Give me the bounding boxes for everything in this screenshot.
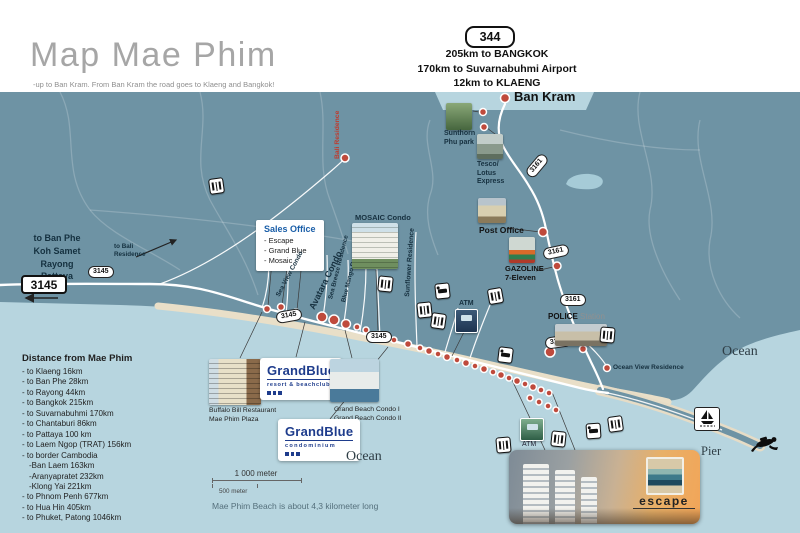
tesco-lotus-label: Tesco/ Lotus Express xyxy=(477,161,504,187)
restaurant-icon xyxy=(599,326,615,343)
hotel-icon xyxy=(497,346,514,364)
gazoline-label: GAZOLINE 7-Eleven xyxy=(505,264,544,282)
tesco-lotus-photo xyxy=(477,134,503,159)
atm-label: ATM xyxy=(522,441,536,448)
sailboat-icon xyxy=(694,407,720,431)
distance-panel-title: Distance from Mae Phim xyxy=(22,353,132,364)
restaurant-icon xyxy=(377,275,394,292)
route-badge-344: 344 xyxy=(465,26,515,48)
dest-rayong: Rayong xyxy=(24,258,90,271)
sales-office-box: Sales Office - Escape - Grand Blue - Mos… xyxy=(256,220,324,271)
sunthorn-phu-park-photo xyxy=(446,103,472,130)
restaurant-icon xyxy=(495,436,511,453)
distance-item: - to Suvarnabuhmi 170km xyxy=(22,409,132,419)
distance-item: -Aranyapratet 232km xyxy=(22,472,132,482)
buffalo-bill-label: Buffalo Bill Restaurant Mae Phim Plaza xyxy=(209,407,276,424)
distance-item: - to Pattaya 100 km xyxy=(22,430,132,440)
atm-icon xyxy=(455,309,478,333)
sales-office-item-grand-blue: - Grand Blue xyxy=(264,246,316,256)
sales-office-title: Sales Office xyxy=(264,224,316,234)
mosaic-condo-photo xyxy=(352,223,398,269)
dest-koh-samet: Koh Samet xyxy=(24,245,90,258)
scale-long-label: 1 000 meter xyxy=(212,469,300,478)
police-station-label: POLICE Station xyxy=(548,312,605,321)
restaurant-icon xyxy=(208,177,225,195)
escape-logo-text: escape xyxy=(633,495,695,509)
distance-item: - to Ban Phe 28km xyxy=(22,377,132,387)
restaurant-icon xyxy=(487,287,505,305)
route-oval-3145: 3145 xyxy=(366,331,392,343)
page-title: Map Mae Phim xyxy=(30,36,277,75)
ocean-label: Ocean xyxy=(722,344,758,360)
gazoline-photo xyxy=(509,237,535,263)
to-bali-residence-label: to Bali Residence xyxy=(114,243,154,259)
hotel-icon xyxy=(434,282,451,299)
post-office-photo xyxy=(478,198,506,223)
restaurant-icon xyxy=(550,430,567,447)
sales-office-item-escape: - Escape xyxy=(264,236,316,246)
distance-item: - to Klaeng 16km xyxy=(22,367,132,377)
escape-logo-icon xyxy=(646,457,684,495)
atm-icon xyxy=(520,418,544,441)
header-distance-airport: 170km to Suvarnabuhmi Airport xyxy=(397,62,597,77)
header-distance-bangkok: 205km to BANGKOK xyxy=(397,47,597,62)
sunthorn-phu-park-label: Sunthorn Phu park xyxy=(444,130,475,147)
beach-length-note: Mae Phim Beach is about 4,3 kilometer lo… xyxy=(212,501,378,511)
scale-bar: 1 000 meter 500 meter xyxy=(212,469,302,495)
grandblue-squares xyxy=(285,452,353,456)
ban-kram-label: Ban Kram xyxy=(514,89,575,104)
grand-beach-condo-photo xyxy=(330,359,379,402)
ocean-label: Ocean xyxy=(346,449,382,465)
restaurant-icon xyxy=(430,312,447,330)
mosaic-condo-label: MOSAIC Condo xyxy=(355,213,411,222)
buffalo-bill-photo xyxy=(209,359,261,405)
distance-item: -Klong Yai 221km xyxy=(22,482,132,492)
restaurant-icon xyxy=(416,301,433,318)
hotel-icon xyxy=(585,422,601,439)
distance-item: - to Bangkok 215km xyxy=(22,398,132,408)
distance-item: - to Phnom Penh 677km xyxy=(22,492,132,502)
distance-item: - to Phuket, Patong 1046km xyxy=(22,513,132,523)
bali-residence-label: Bali Residence xyxy=(334,111,341,159)
distance-item: - to Hua Hin 405km xyxy=(22,503,132,513)
route-oval-3161: 3161 xyxy=(560,294,586,306)
atm-label: ATM xyxy=(459,300,474,307)
pier-label: Pier xyxy=(701,444,721,459)
dest-ban-phe: to Ban Phe xyxy=(24,232,90,245)
escape-photo: escape xyxy=(509,450,700,524)
grandblue-squares xyxy=(267,391,335,395)
distance-item: - to Rayong 44km xyxy=(22,388,132,398)
post-office-label: Post Office xyxy=(479,225,524,235)
distance-item: -Ban Laem 163km xyxy=(22,461,132,471)
map-page: Map Mae Phim -up to Ban Kram. From Ban K… xyxy=(0,0,800,533)
route-oval-3145: 3145 xyxy=(88,266,114,278)
distance-item: - to Laem Ngop (TRAT) 156km xyxy=(22,440,132,450)
header-distances: 205km to BANGKOK 170km to Suvarnabuhmi A… xyxy=(397,47,597,91)
restaurant-icon xyxy=(607,415,624,433)
ocean-view-residence-label: Ocean View Residence xyxy=(613,364,684,371)
page-subtitle: -up to Ban Kram. From Ban Kram the road … xyxy=(33,80,274,89)
scale-short-label: 500 meter xyxy=(219,488,302,495)
distance-item: - to border Cambodia xyxy=(22,451,132,461)
distance-panel: Distance from Mae Phim - to Klaeng 16km … xyxy=(22,353,132,524)
distance-item: - to Chantaburi 86km xyxy=(22,419,132,429)
route-badge-3145-large: 3145 xyxy=(21,275,67,294)
